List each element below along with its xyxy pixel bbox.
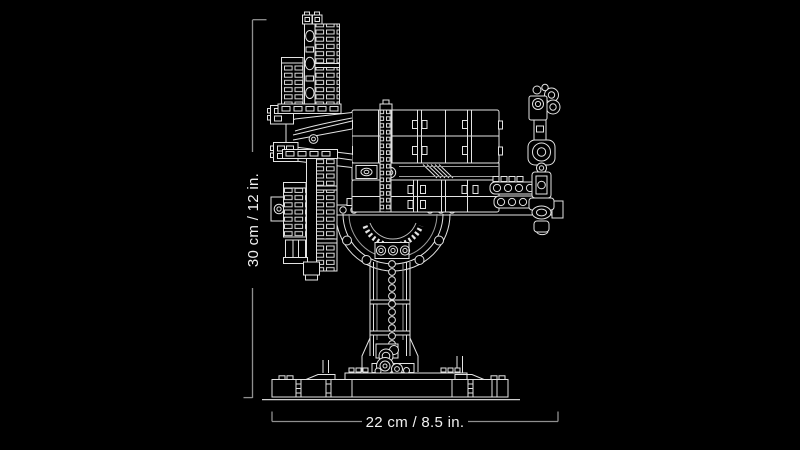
ball-chain (389, 261, 396, 348)
width-dimension-label: 22 cm / 8.5 in. (366, 414, 465, 431)
pedestal-gearbox-top (375, 243, 410, 259)
lego-model-line-art (262, 12, 563, 400)
pedestal-column (362, 261, 418, 375)
lower-plate-stacks (283, 150, 338, 281)
height-dimension-label: 30 cm / 12 in. (245, 173, 262, 267)
upper-plate-stacks (278, 12, 341, 114)
product-dimension-diagram: 30 cm / 12 in. 22 cm / 8.5 in. (0, 0, 800, 450)
line-art-canvas: 30 cm / 12 in. 22 cm / 8.5 in. (0, 0, 800, 450)
pedestal-motor (372, 344, 414, 375)
camera-body (349, 100, 503, 212)
